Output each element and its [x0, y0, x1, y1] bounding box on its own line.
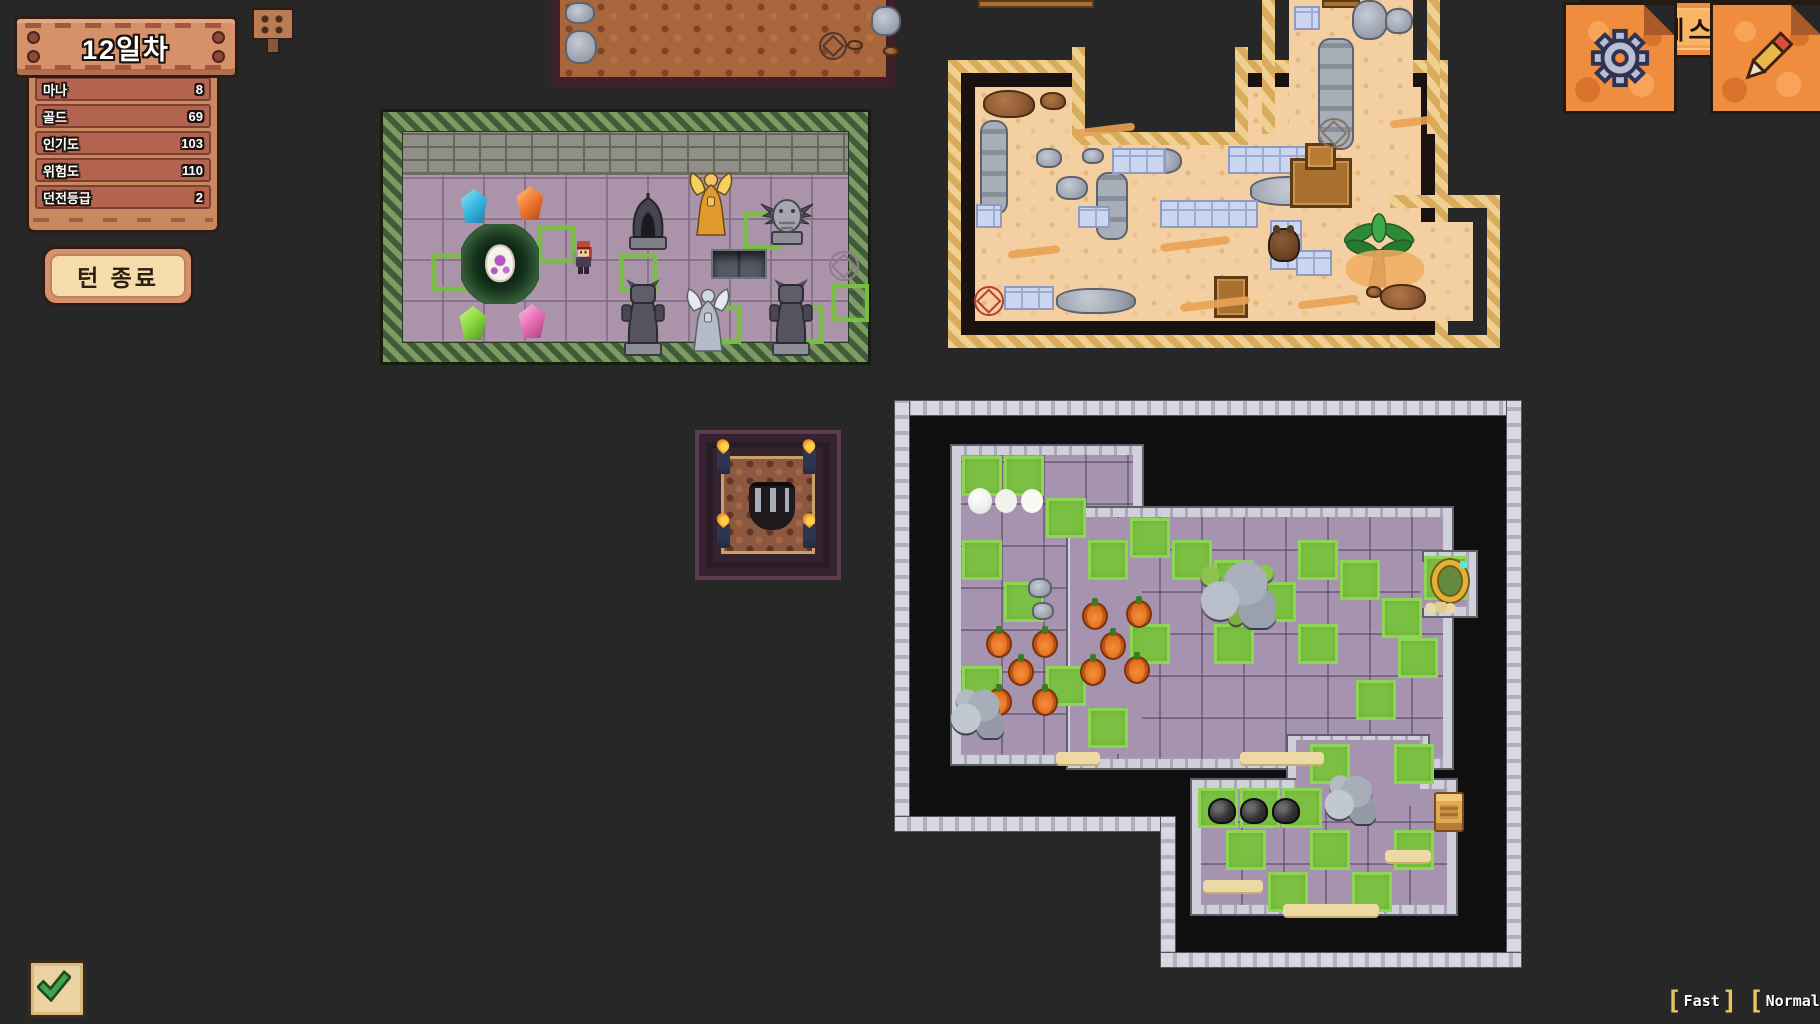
desk[interactable] — [1290, 158, 1352, 208]
stat-row-danger: 위험도 110 — [35, 158, 211, 182]
room-nest-statues[interactable] — [383, 112, 868, 362]
sandstrip — [1385, 850, 1431, 862]
green — [1398, 638, 1438, 678]
green — [1394, 744, 1434, 784]
rock — [565, 2, 595, 24]
green — [1130, 518, 1170, 558]
green — [1298, 540, 1338, 580]
circle-red[interactable] — [974, 286, 1004, 316]
sign-icon[interactable] — [252, 8, 294, 56]
btile — [1296, 250, 1332, 276]
dungeon-wall — [894, 400, 1522, 416]
check-icon — [37, 969, 71, 1003]
rockpile — [1322, 770, 1376, 824]
green — [1340, 560, 1380, 600]
rock — [1056, 176, 1088, 200]
nest-brick-wall — [403, 132, 848, 175]
torch — [717, 524, 730, 548]
dungeon-wall — [894, 400, 910, 832]
green — [1088, 540, 1128, 580]
rock — [1028, 578, 1052, 598]
confirm-button[interactable] — [28, 960, 86, 1018]
settings-button[interactable] — [1563, 2, 1677, 114]
stat-row-mana: 마나 8 — [35, 77, 211, 101]
btile — [1078, 206, 1110, 228]
day-panel: 12일차 — [14, 16, 238, 78]
btile — [1294, 6, 1320, 30]
room-dungeon-entrance[interactable] — [695, 430, 841, 580]
green — [1298, 624, 1338, 664]
rock — [1082, 148, 1104, 164]
stat-label: 던전등급 — [43, 188, 91, 207]
torch — [803, 450, 816, 474]
hero[interactable] — [571, 239, 597, 275]
stat-row-dungeon-rank: 던전등급 2 — [35, 185, 211, 209]
day-label: 12일차 — [82, 28, 170, 67]
demon[interactable] — [618, 279, 668, 357]
coal[interactable] — [1272, 798, 1300, 824]
pumpkin[interactable] — [1082, 602, 1108, 630]
circle-purple[interactable] — [829, 251, 859, 281]
portal[interactable] — [1432, 560, 1468, 602]
stat-label: 마나 — [43, 80, 67, 99]
pit[interactable] — [711, 249, 767, 279]
coal[interactable] — [1240, 798, 1268, 824]
end-turn-button[interactable]: 턴 종료 — [42, 246, 194, 306]
btile — [976, 204, 1002, 228]
pencil-icon — [1736, 27, 1798, 89]
cratebar — [978, 0, 1094, 8]
green — [1226, 830, 1266, 870]
green — [1214, 624, 1254, 664]
btile — [1112, 148, 1166, 174]
speed-normal-button[interactable]: Normal — [1748, 986, 1820, 1016]
room-dirt-top[interactable] — [551, 0, 895, 88]
coal[interactable] — [1208, 798, 1236, 824]
rock — [1036, 148, 1062, 168]
dungeon-wall — [894, 816, 1176, 832]
demon[interactable] — [766, 279, 816, 357]
brock — [983, 90, 1035, 118]
stat-label: 위험도 — [43, 161, 79, 180]
angel-gold[interactable] — [687, 169, 735, 237]
stat-label: 골드 — [43, 107, 67, 126]
spool[interactable] — [1434, 792, 1464, 832]
pumpkin[interactable] — [1080, 658, 1106, 686]
stat-value: 2 — [196, 190, 203, 205]
btile — [1004, 286, 1054, 310]
speed-label: Normal — [1766, 992, 1820, 1010]
btile — [1160, 200, 1258, 228]
circle-gray[interactable] — [1318, 118, 1350, 148]
green — [1004, 456, 1044, 496]
pumpkin[interactable] — [1124, 656, 1150, 684]
gargoyle[interactable] — [759, 192, 815, 246]
stat-value: 8 — [196, 82, 203, 97]
pumpkin[interactable] — [1008, 658, 1034, 686]
sandpatch — [1346, 250, 1424, 288]
green — [1356, 680, 1396, 720]
room-stone-dungeon[interactable] — [894, 400, 1522, 968]
eggs3[interactable] — [968, 488, 992, 514]
dungeon-wall — [1160, 952, 1522, 968]
gear-icon — [1589, 27, 1651, 89]
rock — [565, 30, 597, 64]
pumpkin[interactable] — [1126, 600, 1152, 628]
pebbles — [1424, 602, 1456, 614]
rocksv — [980, 120, 1008, 215]
torch — [717, 450, 730, 474]
pumpkin[interactable] — [1100, 632, 1126, 660]
dungeon-wall — [1160, 816, 1176, 968]
green — [1088, 708, 1128, 748]
sign-post — [266, 39, 280, 54]
brock — [847, 40, 863, 50]
stats-panel: 마나 8 골드 69 인기도 103 위험도 110 던전등급 2 — [26, 72, 220, 233]
rockpile — [948, 684, 1004, 738]
pumpkin[interactable] — [1032, 688, 1058, 716]
stat-label: 인기도 — [43, 134, 79, 153]
helm[interactable] — [625, 191, 671, 251]
pumpkin[interactable] — [1032, 630, 1058, 658]
spawn[interactable] — [831, 284, 869, 322]
rock — [1032, 602, 1054, 620]
sandstrip — [1240, 752, 1324, 764]
stat-row-popularity: 인기도 103 — [35, 131, 211, 155]
green — [1310, 830, 1350, 870]
monster[interactable] — [1268, 228, 1300, 262]
rock — [1056, 288, 1136, 314]
green — [1046, 498, 1086, 538]
green — [1382, 598, 1422, 638]
sign-plate — [252, 8, 294, 40]
sandstrip — [1056, 752, 1100, 764]
rock — [871, 6, 901, 36]
brock — [1040, 92, 1066, 110]
room-desert[interactable] — [948, 0, 1500, 348]
brock — [883, 46, 899, 56]
stat-row-gold: 골드 69 — [35, 104, 211, 128]
brock — [1366, 286, 1382, 298]
speed-label: Fast — [1684, 992, 1720, 1010]
rock — [1385, 8, 1413, 34]
torch — [803, 524, 816, 548]
rock — [1352, 0, 1388, 40]
stats-footer — [33, 212, 213, 228]
sandstrip — [1203, 880, 1263, 892]
angel-white[interactable] — [684, 281, 732, 357]
stat-value: 69 — [189, 109, 203, 124]
dungeon-wall — [1506, 400, 1522, 968]
game-screen: 12일차 마나 8 골드 69 인기도 103 위험도 110 던전등급 2 턴… — [0, 0, 1820, 1024]
sandstrip — [1283, 904, 1379, 916]
end-turn-label: 턴 종료 — [77, 259, 159, 293]
nest[interactable] — [461, 224, 539, 304]
brock — [1380, 284, 1426, 310]
circle-dark[interactable] — [819, 32, 847, 60]
cave[interactable] — [749, 482, 795, 530]
speed-fast-button[interactable]: Fast — [1666, 986, 1737, 1016]
stat-value: 110 — [182, 163, 203, 178]
stat-value: 103 — [181, 136, 203, 151]
pumpkin[interactable] — [986, 630, 1012, 658]
edit-button[interactable] — [1710, 2, 1820, 114]
green — [962, 540, 1002, 580]
mossrocks — [1196, 556, 1276, 628]
